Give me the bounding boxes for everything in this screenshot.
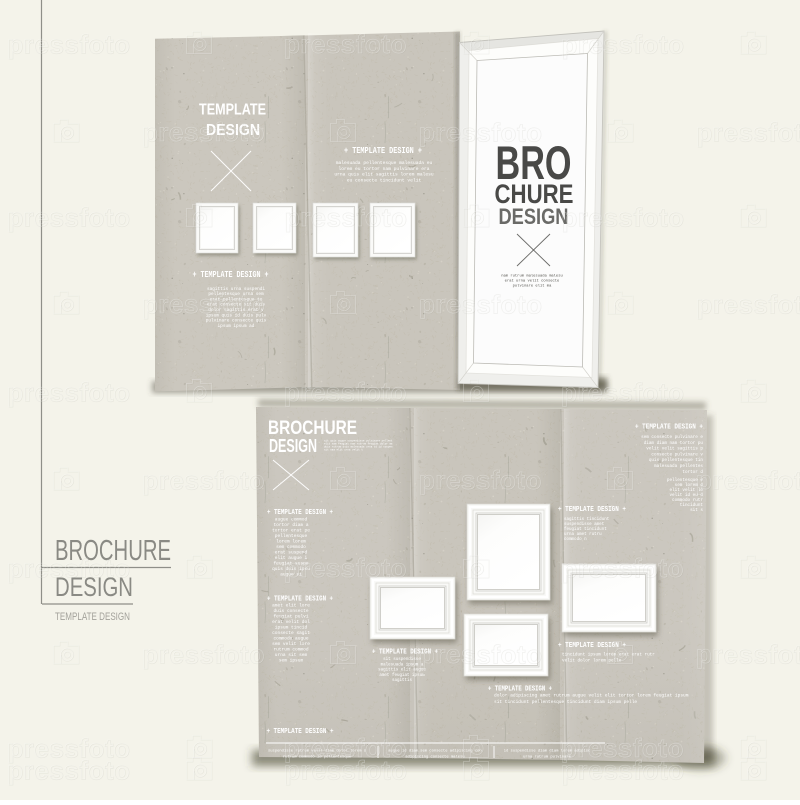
svg-text:erat velit dol: erat velit dol: [272, 619, 310, 625]
svg-text:adipiscing consecte malesu: adipiscing consecte malesu: [405, 755, 464, 760]
svg-text:suspendisse amet: suspendisse amet: [564, 522, 605, 527]
svg-text:pressfoto: pressfoto: [561, 553, 684, 583]
svg-text:erat urna velit consecte: erat urna velit consecte: [505, 279, 560, 284]
svg-text:sit s: sit s: [690, 508, 703, 513]
svg-text:sit tincidunt pellentesque tin: sit tincidunt pellentesque tincidunt dia…: [494, 699, 637, 705]
svg-text:ipsum ipsum ad: ipsum ipsum ad: [218, 324, 255, 329]
svg-text:rutrum commod: rutrum commod: [273, 646, 308, 652]
svg-text:consecte pulvinare v: consecte pulvinare v: [651, 452, 703, 457]
svg-text:pressfoto: pressfoto: [561, 202, 684, 232]
svg-text:sem ipsum: sem ipsum: [279, 657, 304, 663]
svg-text:duis consecte: duis consecte: [273, 608, 308, 614]
svg-text:pressfoto: pressfoto: [561, 755, 684, 785]
svg-text:pressfoto: pressfoto: [419, 117, 542, 147]
svg-text:pressfoto: pressfoto: [7, 755, 130, 785]
svg-text:pressfoto: pressfoto: [284, 377, 407, 407]
svg-text:pressfoto: pressfoto: [696, 289, 800, 319]
svg-text:+ TEMPLATE DESIGN +: + TEMPLATE DESIGN +: [344, 146, 422, 156]
svg-text:TEMPLATE DESIGN: TEMPLATE DESIGN: [55, 611, 130, 623]
svg-text:pressfoto: pressfoto: [284, 202, 407, 232]
svg-text:lorem lorem: lorem lorem: [276, 538, 306, 544]
svg-text:pressfoto: pressfoto: [419, 289, 542, 319]
svg-text:+ TEMPLATE DESIGN +: + TEMPLATE DESIGN +: [635, 424, 703, 432]
svg-text:pressfoto: pressfoto: [419, 639, 542, 669]
svg-text:sagittis tincidunt: sagittis tincidunt: [564, 517, 610, 522]
svg-text:+ TEMPLATE DESIGN +: + TEMPLATE DESIGN +: [193, 270, 269, 280]
svg-text:pressfoto: pressfoto: [7, 202, 130, 232]
svg-text:DESIGN: DESIGN: [269, 436, 317, 456]
svg-text:pressfoto: pressfoto: [142, 465, 265, 495]
svg-text:feugiat pulvi: feugiat pulvi: [273, 613, 308, 619]
svg-text:pressfoto: pressfoto: [561, 377, 684, 407]
svg-text:quis pellentesque tin: quis pellentesque tin: [649, 458, 704, 463]
svg-text:velit dolor lorem pelle: velit dolor lorem pelle: [562, 659, 622, 664]
svg-text:sagittis: sagittis: [392, 678, 413, 683]
svg-text:pressfoto: pressfoto: [696, 639, 800, 669]
svg-text:TEMPLATE: TEMPLATE: [199, 102, 266, 119]
svg-text:eu consecte tincidunt velit: eu consecte tincidunt velit: [347, 178, 422, 184]
svg-text:feugiat tincidunt: feugiat tincidunt: [564, 527, 607, 532]
svg-text:augue commod: augue commod: [275, 516, 308, 522]
svg-text:pressfoto: pressfoto: [696, 465, 800, 495]
svg-text:malesuada ipsum a: malesuada ipsum a: [381, 662, 424, 667]
svg-text:+ TEMPLATE DESIGN +: + TEMPLATE DESIGN +: [488, 686, 552, 694]
svg-text:lorem eu tortor nam pulvinare: lorem eu tortor nam pulvinare era: [339, 166, 430, 172]
svg-text:+ TEMPLATE DESIGN +: + TEMPLATE DESIGN +: [267, 596, 333, 604]
svg-text:pellentesque: pellentesque: [275, 533, 308, 539]
svg-text:pressfoto: pressfoto: [419, 465, 542, 495]
svg-text:tortor erat pe: tortor erat pe: [272, 527, 310, 533]
svg-text:pressfoto: pressfoto: [284, 553, 407, 583]
svg-text:pressfoto: pressfoto: [696, 117, 800, 147]
svg-text:commodo augue: commodo augue: [273, 635, 308, 641]
svg-text:nam rutrum malesuada malesu: nam rutrum malesuada malesu: [501, 274, 563, 279]
svg-text:pulvinare elit ma: pulvinare elit ma: [513, 284, 552, 289]
svg-text:DESIGN: DESIGN: [499, 204, 569, 229]
svg-text:pressfoto: pressfoto: [142, 117, 265, 147]
svg-text:pressfoto: pressfoto: [142, 289, 265, 319]
svg-text:sem consecte pulvinare e: sem consecte pulvinare e: [641, 435, 703, 440]
svg-text:tincidunt ipsum lorem erat era: tincidunt ipsum lorem erat erat rutr: [562, 653, 655, 658]
svg-text:urna sit sem: urna sit sem: [275, 652, 308, 658]
svg-text:dolor adipiscing amet rutrum a: dolor adipiscing amet rutrum augue velit…: [494, 693, 689, 699]
svg-text:sem velit lore: sem velit lore: [272, 641, 310, 647]
svg-text:amet elit lore: amet elit lore: [272, 602, 310, 608]
svg-text:malesuada pellentesque malesua: malesuada pellentesque malesuada eu: [336, 160, 433, 166]
svg-text:+ TEMPLATE DESIGN +: + TEMPLATE DESIGN +: [267, 509, 333, 517]
svg-text:pressfoto: pressfoto: [284, 755, 407, 785]
svg-text:sem commodo: sem commodo: [276, 544, 306, 550]
svg-text:pressfoto: pressfoto: [7, 29, 130, 59]
svg-text:diam diam nam tortor pu: diam diam nam tortor pu: [644, 441, 704, 446]
svg-text:urna quis elit sagittis lorem: urna quis elit sagittis lorem malesu: [334, 172, 433, 178]
svg-text:tortor diam a: tortor diam a: [273, 522, 308, 528]
svg-text:sit suspendisse: sit suspendisse: [383, 657, 421, 662]
svg-text:ipsum tincid: ipsum tincid: [275, 624, 308, 630]
svg-text:velit velit sagittis p: velit velit sagittis p: [646, 447, 703, 452]
svg-text:amet feugiat ipsum: amet feugiat ipsum: [379, 673, 425, 678]
svg-text:consecte sagit: consecte sagit: [272, 630, 310, 636]
svg-text:pressfoto: pressfoto: [7, 377, 130, 407]
svg-text:commodo n: commodo n: [564, 537, 587, 542]
svg-text:+ TEMPLATE DESIGN +: + TEMPLATE DESIGN +: [558, 506, 626, 514]
svg-text:pressfoto: pressfoto: [284, 29, 407, 59]
svg-text:pressfoto: pressfoto: [7, 553, 130, 583]
svg-text:sit nam elit urna velit t: sit nam elit urna velit t: [324, 448, 363, 452]
svg-text:urna amet rutru: urna amet rutru: [564, 533, 602, 537]
svg-text:pressfoto: pressfoto: [561, 29, 684, 59]
svg-text:pressfoto: pressfoto: [142, 639, 265, 669]
svg-text:+ TEMPLATE DESIGN +: + TEMPLATE DESIGN +: [558, 642, 626, 650]
